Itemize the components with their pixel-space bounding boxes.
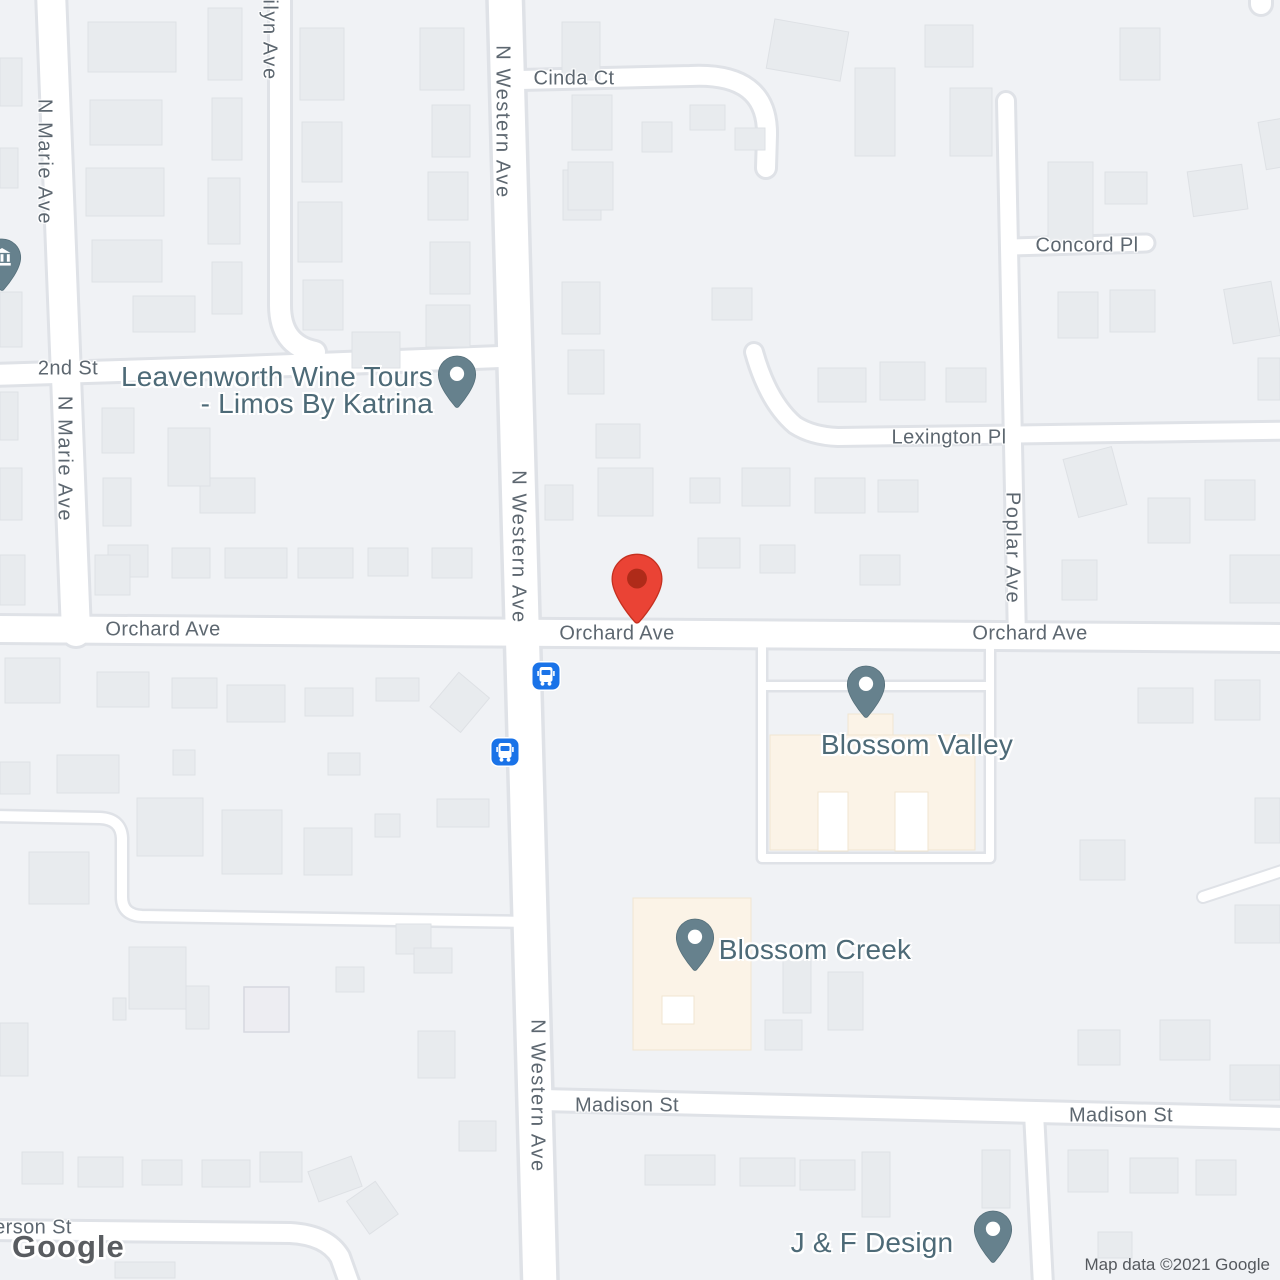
poi-pin-jf-design[interactable]: [973, 1210, 1013, 1270]
street-label-n-marie-ave-top: N Marie Ave: [33, 99, 56, 225]
map-attribution: Map data ©2021 Google: [1085, 1255, 1271, 1275]
poi-label-leavenworth-wine-tours[interactable]: Leavenworth Wine Tours - Limos By Katrin…: [121, 363, 433, 417]
poi-label-line1: Leavenworth Wine Tours: [121, 363, 433, 390]
street-label-n-western-ave-bottom: N Western Ave: [526, 1019, 549, 1172]
street-label-orchard-ave-east: Orchard Ave: [972, 623, 1087, 646]
poi-pin-leavenworth[interactable]: [437, 355, 477, 415]
poi-label-blossom-valley[interactable]: Blossom Valley: [821, 729, 1013, 761]
poi-label-jf-design[interactable]: J & F Design: [791, 1227, 954, 1259]
poi-pin-blossom-creek[interactable]: [675, 918, 715, 978]
bus-stop-icon-south[interactable]: [492, 739, 519, 766]
bus-stop-icon-north[interactable]: [533, 663, 560, 690]
street-label-n-marie-ave-mid: N Marie Ave: [53, 396, 76, 522]
street-label-2nd-st: 2nd St: [38, 358, 98, 381]
street-label-marilyn-ave: ilyn Ave: [258, 0, 281, 81]
bus-icon: [492, 739, 519, 766]
google-logo[interactable]: Google: [8, 1224, 148, 1268]
street-label-madison-st-east: Madison St: [1069, 1105, 1173, 1128]
street-label-poplar-ave: Poplar Ave: [1001, 492, 1024, 604]
poi-pin-bank-partial[interactable]: [0, 238, 22, 298]
street-label-cinda-ct: Cinda Ct: [533, 68, 614, 91]
poi-label-line2: - Limos By Katrina: [121, 390, 433, 417]
street-label-lexington-pl: Lexington Pl: [892, 427, 1007, 450]
poi-label-blossom-creek[interactable]: Blossom Creek: [719, 934, 911, 966]
street-label-n-western-ave-top: N Western Ave: [491, 45, 514, 198]
street-label-n-western-ave-mid: N Western Ave: [507, 470, 530, 623]
bus-icon: [533, 663, 560, 690]
svg-text:Google: Google: [12, 1229, 125, 1264]
map-canvas[interactable]: Cinda Ct N Western Ave ilyn Ave N Marie …: [0, 0, 1280, 1280]
street-label-orchard-ave-west: Orchard Ave: [105, 619, 220, 642]
poi-pin-blossom-valley[interactable]: [846, 665, 886, 725]
destination-marker-pin[interactable]: [611, 553, 663, 633]
street-label-concord-pl: Concord Pl: [1036, 235, 1139, 258]
street-label-madison-st-west: Madison St: [575, 1095, 679, 1118]
